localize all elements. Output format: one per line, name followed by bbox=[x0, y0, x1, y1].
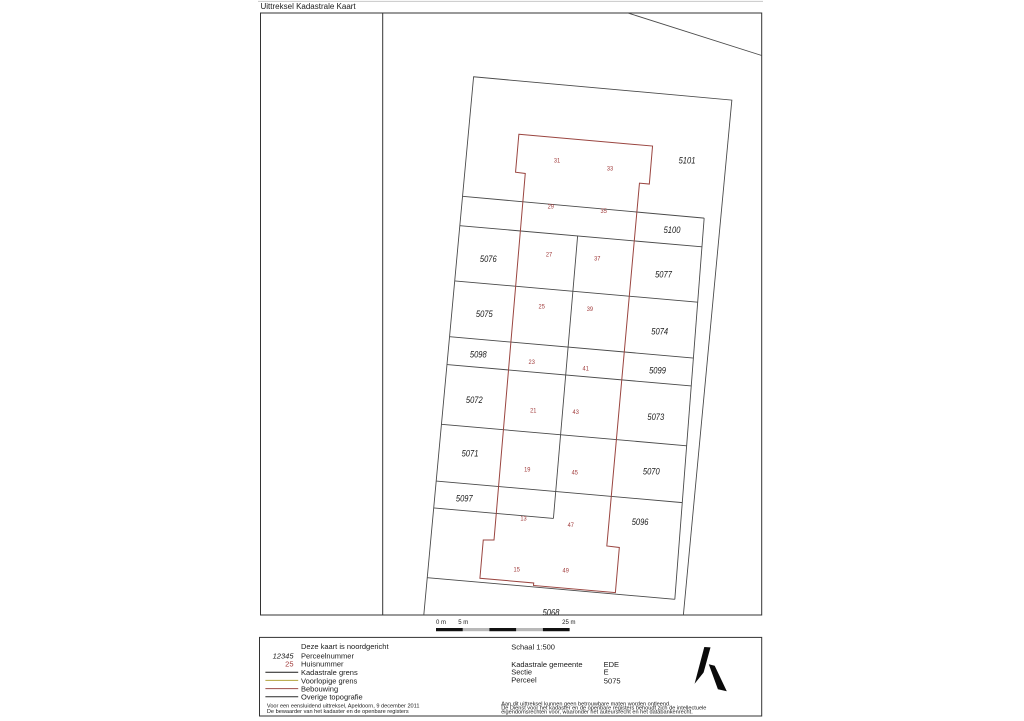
svg-text:39: 39 bbox=[587, 306, 594, 313]
svg-text:Perceel: Perceel bbox=[511, 675, 537, 684]
svg-text:29: 29 bbox=[548, 203, 555, 210]
svg-text:Uittreksel Kadastrale Kaart: Uittreksel Kadastrale Kaart bbox=[261, 2, 357, 11]
svg-text:0 m: 0 m bbox=[436, 620, 446, 626]
svg-text:47: 47 bbox=[568, 522, 575, 529]
svg-text:5075: 5075 bbox=[476, 309, 494, 319]
svg-text:27: 27 bbox=[546, 252, 553, 259]
svg-text:31: 31 bbox=[554, 157, 561, 164]
svg-text:5077: 5077 bbox=[655, 270, 673, 280]
svg-text:Overige topografie: Overige topografie bbox=[301, 693, 363, 702]
svg-text:41: 41 bbox=[583, 366, 590, 373]
svg-text:5 m: 5 m bbox=[458, 620, 468, 626]
svg-text:Deze kaart is noordgericht: Deze kaart is noordgericht bbox=[301, 642, 389, 651]
svg-text:De bewaarder van het kadaster: De bewaarder van het kadaster en de open… bbox=[267, 709, 409, 715]
svg-text:45: 45 bbox=[572, 470, 579, 477]
svg-text:5076: 5076 bbox=[480, 254, 497, 264]
svg-text:5070: 5070 bbox=[643, 466, 660, 476]
svg-text:E: E bbox=[604, 668, 609, 677]
svg-text:49: 49 bbox=[563, 567, 570, 574]
svg-text:Schaal 1:500: Schaal 1:500 bbox=[511, 642, 555, 651]
svg-text:25: 25 bbox=[285, 660, 293, 669]
svg-text:5074: 5074 bbox=[651, 326, 668, 336]
svg-text:5071: 5071 bbox=[462, 448, 479, 458]
svg-text:eigendomsrechten voor, waarond: eigendomsrechten voor, waaronder het aut… bbox=[501, 710, 693, 716]
svg-text:5072: 5072 bbox=[466, 395, 483, 405]
svg-text:5100: 5100 bbox=[664, 225, 681, 235]
svg-text:5098: 5098 bbox=[470, 349, 487, 359]
svg-text:5101: 5101 bbox=[679, 156, 696, 166]
svg-text:35: 35 bbox=[601, 208, 608, 215]
svg-text:5099: 5099 bbox=[649, 365, 666, 375]
svg-text:5075: 5075 bbox=[604, 677, 621, 686]
svg-text:37: 37 bbox=[594, 255, 601, 262]
svg-text:13: 13 bbox=[520, 515, 527, 522]
svg-text:5068: 5068 bbox=[543, 608, 560, 618]
svg-text:5097: 5097 bbox=[456, 493, 474, 503]
svg-text:43: 43 bbox=[573, 409, 580, 416]
svg-text:5096: 5096 bbox=[632, 517, 649, 527]
svg-text:33: 33 bbox=[607, 165, 614, 172]
svg-text:23: 23 bbox=[529, 359, 536, 366]
svg-text:25 m: 25 m bbox=[562, 620, 575, 626]
svg-text:25: 25 bbox=[539, 303, 546, 310]
svg-text:15: 15 bbox=[514, 567, 521, 574]
svg-text:5073: 5073 bbox=[647, 412, 664, 422]
svg-text:21: 21 bbox=[530, 407, 537, 414]
svg-text:19: 19 bbox=[524, 467, 531, 474]
